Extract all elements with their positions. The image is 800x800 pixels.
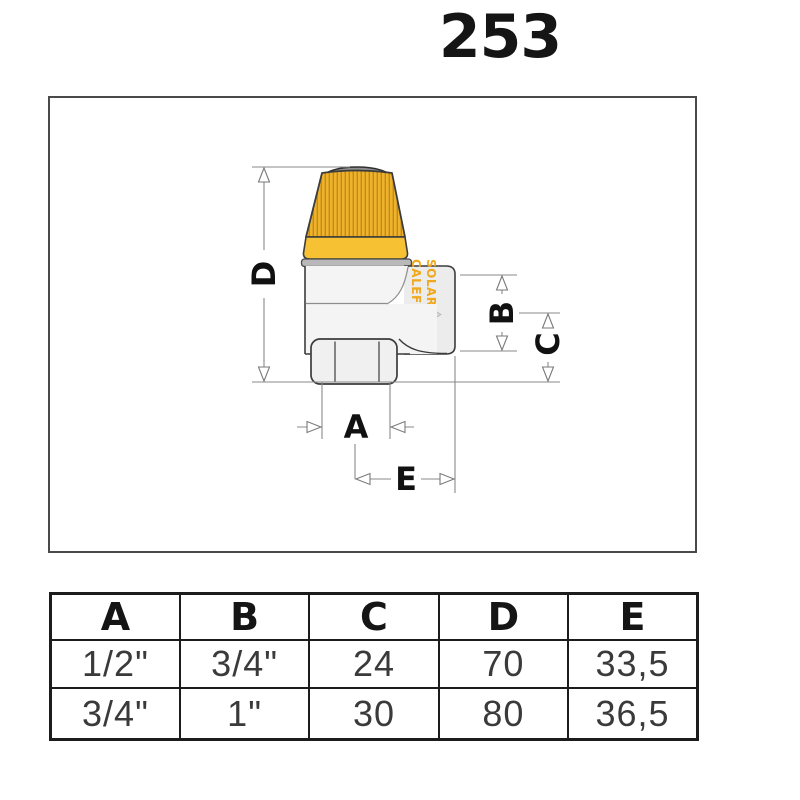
cell-dim-e: 36,5 <box>568 688 697 740</box>
dim-arrow-down <box>497 336 508 350</box>
column-header-e: E <box>568 594 697 641</box>
cell-dim-c: 30 <box>309 688 438 740</box>
cell-size-b: 3/4" <box>180 640 309 688</box>
brand-text-solar: SOLAR <box>424 259 438 307</box>
dim-arrow-left <box>391 422 405 433</box>
valve-illustration: CALEFFI SOLAR <box>302 167 456 384</box>
table-row: 1/2" 3/4" 24 70 33,5 <box>51 640 698 688</box>
dim-label-c: C <box>529 332 567 355</box>
cell-dim-d: 80 <box>439 688 568 740</box>
valve-dimension-drawing: CALEFFI SOLAR D <box>50 98 699 555</box>
page-title: 253 <box>400 2 600 72</box>
dim-arrow-up <box>497 276 508 290</box>
dim-label-b: B <box>483 301 521 325</box>
valve-cap-band <box>303 237 407 259</box>
cell-size-a: 3/4" <box>51 688 180 740</box>
cell-size-a: 1/2" <box>51 640 180 688</box>
column-header-d: D <box>439 594 568 641</box>
column-header-a: A <box>51 594 180 641</box>
hex-nut <box>311 339 397 384</box>
column-header-b: B <box>180 594 309 641</box>
cell-dim-c: 24 <box>309 640 438 688</box>
dim-arrow-up <box>543 314 554 328</box>
column-header-c: C <box>309 594 438 641</box>
cell-dim-e: 33,5 <box>568 640 697 688</box>
cell-size-b: 1" <box>180 688 309 740</box>
cell-dim-d: 70 <box>439 640 568 688</box>
valve-cap-ribbed <box>306 171 405 238</box>
dimensions-table: A B C D E 1/2" 3/4" 24 70 33,5 3/4" 1" 3… <box>49 592 699 741</box>
dim-arrow-down <box>543 367 554 381</box>
dim-arrow-right <box>440 474 454 485</box>
dim-label-a: A <box>344 408 369 446</box>
dim-arrow-right <box>307 422 321 433</box>
dim-arrow-down <box>259 367 270 381</box>
valve-flange <box>302 259 412 267</box>
table-header-row: A B C D E <box>51 594 698 641</box>
drawing-frame: CALEFFI SOLAR D <box>48 96 697 553</box>
dim-arrow-up <box>259 168 270 182</box>
dim-label-d: D <box>245 261 283 288</box>
dim-arrow-left <box>356 474 370 485</box>
dim-label-e: E <box>395 460 417 498</box>
table-row: 3/4" 1" 30 80 36,5 <box>51 688 698 740</box>
